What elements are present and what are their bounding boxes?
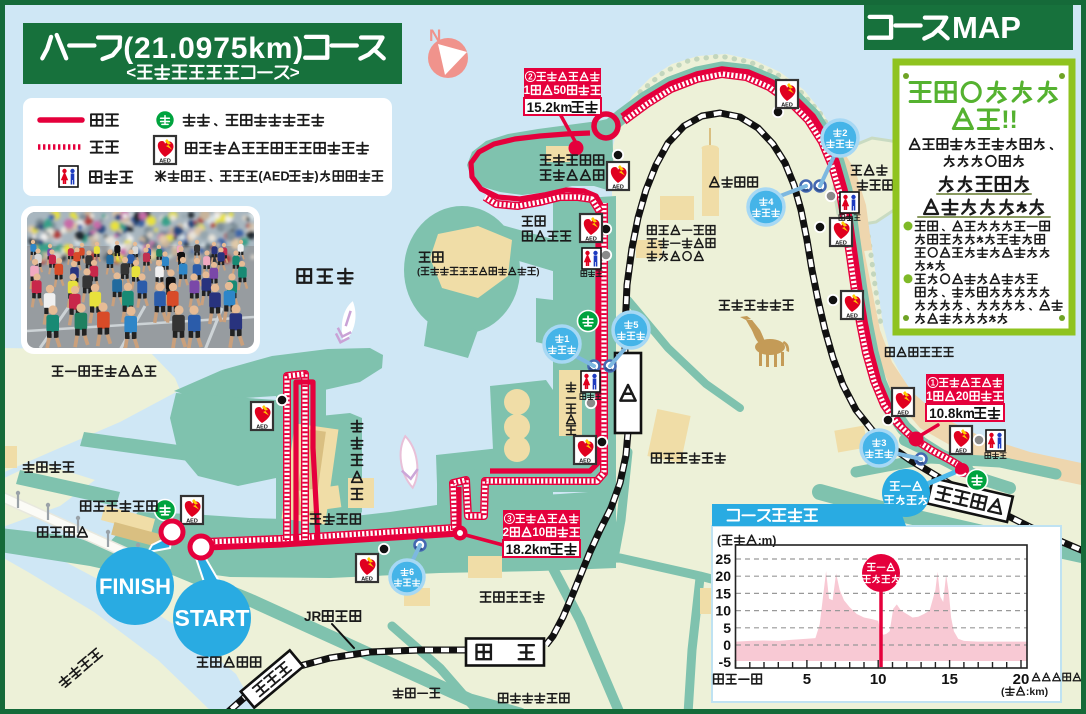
svg-text:20: 20 [715,568,731,584]
svg-text:>: > [290,63,300,82]
svg-text:1: 1 [564,334,569,344]
svg-text:FINISH: FINISH [99,574,171,599]
svg-text:<: < [126,63,136,82]
svg-text:3: 3 [881,438,886,448]
svg-text:50: 50 [553,85,566,97]
svg-text:(21.0975km): (21.0975km) [123,32,303,65]
svg-text:AED: AED [585,237,597,243]
svg-text:5: 5 [723,620,731,636]
svg-text:25: 25 [715,551,731,567]
svg-text:6: 6 [409,567,414,577]
svg-text:15: 15 [715,585,731,601]
svg-text:(AED: (AED [258,169,289,184]
svg-text:!!: !! [1001,106,1018,134]
svg-text:2: 2 [842,128,847,138]
svg-text:2: 2 [528,72,533,81]
svg-text:4: 4 [768,197,774,207]
svg-text:0: 0 [723,637,731,653]
svg-text:1: 1 [926,391,933,403]
svg-text:3: 3 [507,514,512,523]
svg-text:15.2km: 15.2km [527,100,573,115]
svg-text:20: 20 [956,391,969,403]
svg-text:AED: AED [955,449,967,455]
svg-text:AED: AED [835,241,847,247]
svg-text:1: 1 [524,85,531,97]
svg-text:): ) [314,169,318,184]
svg-text:2: 2 [503,527,509,539]
svg-text:AED: AED [186,519,198,525]
svg-text:N: N [429,26,441,45]
svg-text:JR: JR [304,609,322,624]
svg-text:AED: AED [846,314,858,320]
svg-text:AED: AED [159,159,171,165]
svg-text:5: 5 [803,671,811,688]
svg-text:MAP: MAP [952,10,1021,45]
svg-text:(: ( [1001,686,1005,698]
svg-text::km): :km) [1026,686,1048,698]
svg-text:AED: AED [897,411,909,417]
svg-text:18.2km: 18.2km [506,542,552,557]
svg-text:AED: AED [579,459,591,465]
svg-text:): ) [536,266,539,277]
svg-text:10.8km: 10.8km [929,406,975,421]
svg-text:(: ( [717,533,721,547]
svg-text:AED: AED [781,103,793,109]
svg-text:AED: AED [361,577,373,583]
svg-text:AED: AED [256,425,268,431]
svg-text:AED: AED [612,185,624,191]
svg-text:10: 10 [715,603,731,619]
svg-text:10: 10 [532,527,545,539]
svg-text:15: 15 [941,671,958,688]
svg-text:-5: -5 [719,654,732,670]
svg-text:1: 1 [931,378,936,387]
svg-text:10: 10 [870,671,887,688]
svg-text:START: START [175,605,250,631]
svg-text:5: 5 [633,320,638,330]
